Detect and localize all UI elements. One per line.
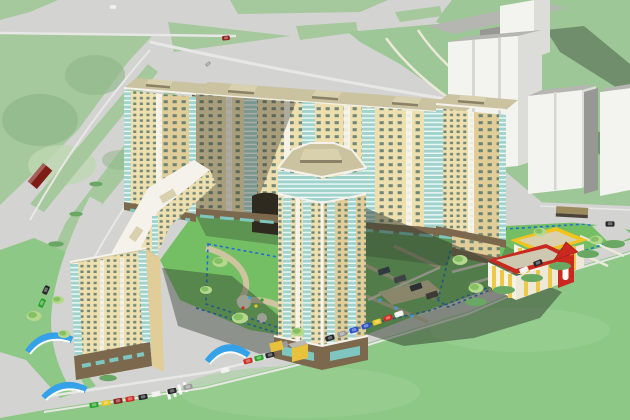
playground-equipment (410, 314, 413, 317)
playground-equipment (248, 296, 251, 299)
white-building-3 (600, 84, 630, 196)
playground-equipment (378, 298, 381, 301)
bush (521, 274, 543, 282)
bush (577, 250, 599, 258)
tree (52, 296, 64, 304)
tree (27, 311, 42, 321)
playground-equipment (254, 304, 257, 307)
tree (534, 228, 547, 237)
tree (291, 328, 305, 337)
car (222, 35, 230, 40)
bus (556, 206, 589, 218)
site-plan-svg (0, 0, 630, 420)
tree (589, 236, 603, 245)
car (110, 5, 116, 9)
bush (549, 262, 571, 270)
tree (200, 286, 212, 294)
bush (69, 212, 82, 217)
bush (48, 241, 63, 247)
central-tower (274, 143, 368, 370)
bush (603, 240, 625, 248)
tower-southwest (70, 248, 164, 380)
tree (232, 313, 249, 324)
white-building-2 (528, 84, 598, 194)
tree (213, 257, 228, 267)
bush (493, 286, 515, 294)
playground-equipment (260, 298, 263, 301)
bush (89, 182, 102, 187)
tree (58, 330, 70, 338)
playground-equipment (394, 306, 397, 309)
tree (453, 255, 468, 265)
facade (600, 88, 630, 196)
playground-equipment (241, 306, 244, 309)
architectural-render-canvas (0, 0, 630, 420)
bush (99, 375, 117, 381)
tree (469, 283, 484, 293)
car (606, 221, 615, 226)
bush (465, 298, 487, 306)
